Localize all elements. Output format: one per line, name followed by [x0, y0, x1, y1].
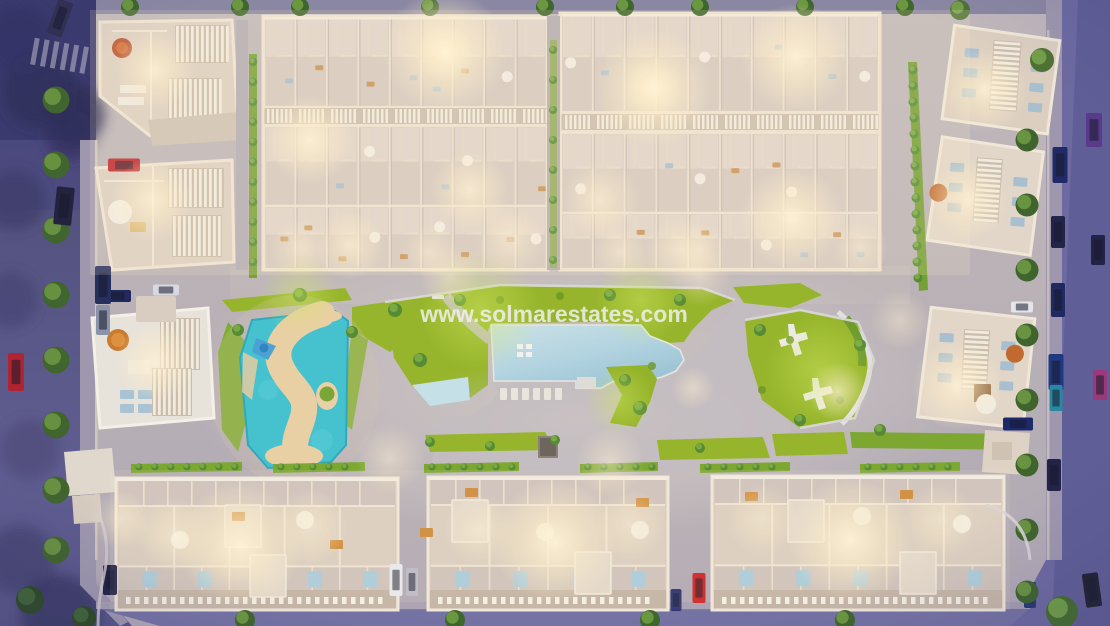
- svg-text:www.solmarestates.com: www.solmarestates.com: [419, 301, 688, 327]
